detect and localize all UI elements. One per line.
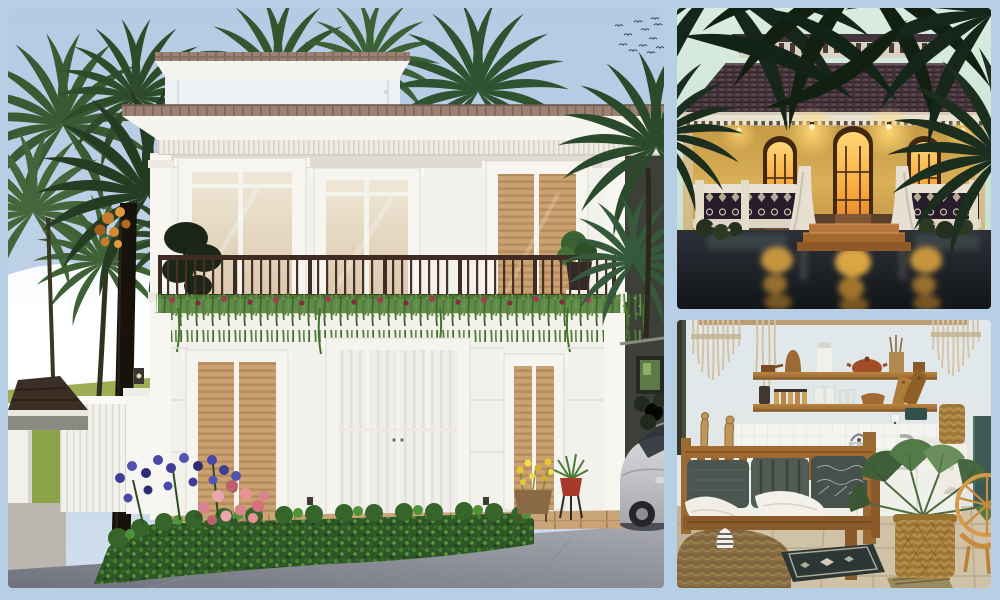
villa-exterior-illustration: [8, 8, 664, 588]
upper-floor: [148, 155, 627, 313]
heritage-house-illustration: [677, 8, 991, 309]
dusk-house: [683, 34, 985, 240]
heritage-house-dusk-photo: [677, 8, 991, 309]
outlet: [891, 414, 900, 422]
boho-interior-photo: [677, 320, 991, 588]
lower-window-1: [182, 350, 292, 516]
penthouse: [155, 52, 410, 110]
entry-steps: [797, 224, 911, 251]
collage-canvas: [0, 0, 1000, 600]
villa-exterior-photo: [8, 8, 664, 588]
boho-interior-illustration: [677, 320, 991, 588]
villa-house: [122, 52, 664, 528]
wall-box: [905, 408, 927, 420]
patio-doors: [322, 338, 474, 514]
upper-shelf: [753, 372, 937, 379]
